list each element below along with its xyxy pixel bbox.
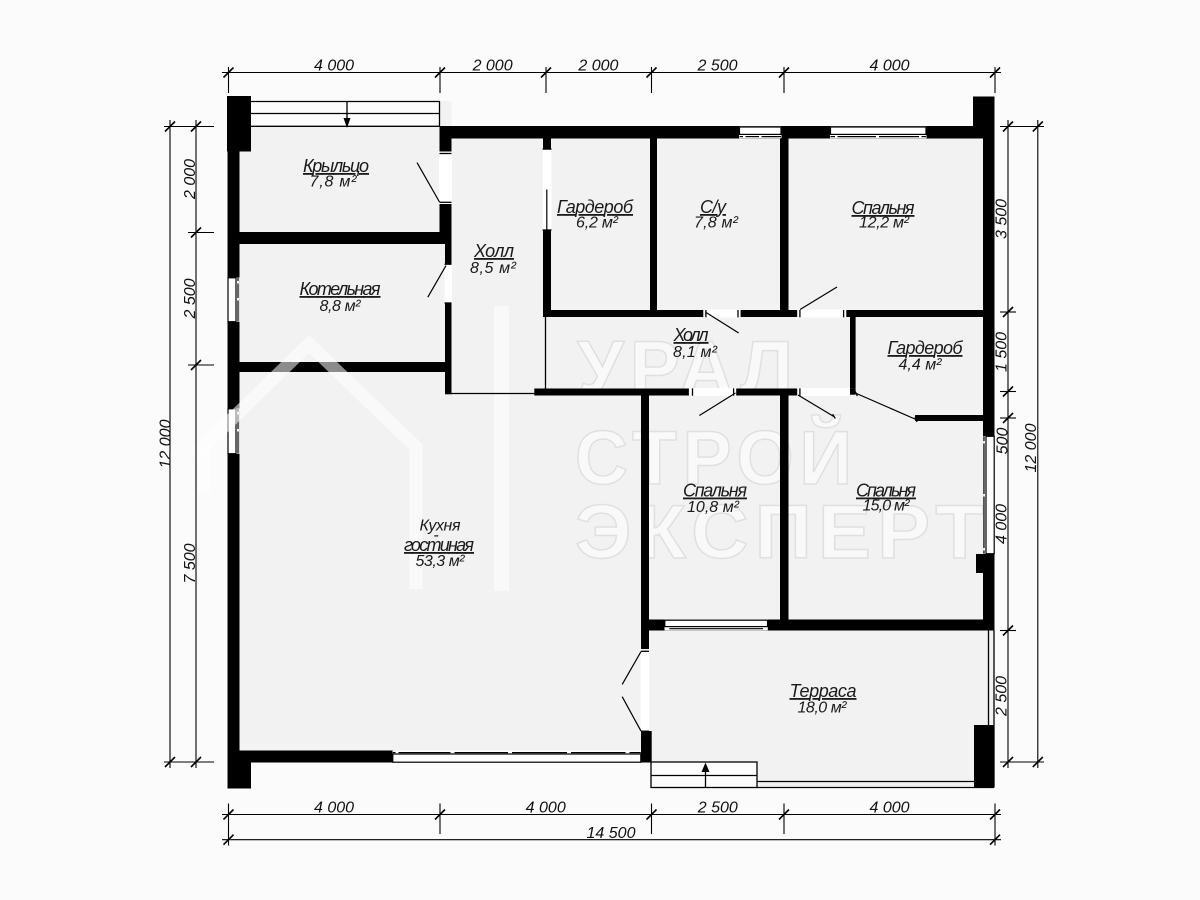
svg-text:Кухня: Кухня <box>420 518 461 535</box>
svg-text:10,8 м²: 10,8 м² <box>687 499 740 516</box>
svg-text:12,2 м²: 12,2 м² <box>859 215 910 232</box>
svg-text:12 000: 12 000 <box>158 419 175 468</box>
svg-text:2 500: 2 500 <box>182 278 199 319</box>
svg-text:8,8 м²: 8,8 м² <box>320 298 362 315</box>
svg-text:15,0 м²: 15,0 м² <box>863 498 911 515</box>
svg-text:4 000: 4 000 <box>526 800 566 817</box>
svg-text:4 000: 4 000 <box>314 800 354 817</box>
svg-text:53,3 м²: 53,3 м² <box>416 553 466 570</box>
svg-text:7,8 м²: 7,8 м² <box>694 215 739 232</box>
svg-text:18,0 м²: 18,0 м² <box>798 700 848 717</box>
svg-text:Холл: Холл <box>673 325 709 345</box>
svg-text:14 500: 14 500 <box>587 825 636 842</box>
svg-text:8,1 м²: 8,1 м² <box>673 344 718 361</box>
svg-text:Гардероб: Гардероб <box>888 338 964 358</box>
svg-text:2 000: 2 000 <box>577 58 618 75</box>
svg-text:Котельная: Котельная <box>300 279 381 299</box>
svg-text:3 500: 3 500 <box>994 199 1011 239</box>
svg-text:2 500: 2 500 <box>696 58 737 75</box>
svg-text:Спальня: Спальня <box>683 481 747 501</box>
svg-text:500: 500 <box>995 428 1012 455</box>
svg-text:6,2 м²: 6,2 м² <box>576 215 619 232</box>
svg-text:Холл: Холл <box>473 241 514 261</box>
svg-text:2 500: 2 500 <box>994 676 1011 717</box>
svg-text:7 500: 7 500 <box>182 543 199 583</box>
svg-text:2 500: 2 500 <box>697 800 738 817</box>
svg-text:2 000: 2 000 <box>182 159 199 200</box>
svg-text:4 000: 4 000 <box>869 800 909 817</box>
svg-text:гостиная: гостиная <box>404 535 474 555</box>
svg-text:7,8 м²: 7,8 м² <box>310 174 358 191</box>
svg-text:2 000: 2 000 <box>472 58 513 75</box>
svg-text:4,4 м²: 4,4 м² <box>899 357 943 374</box>
svg-text:4 000: 4 000 <box>869 58 909 75</box>
svg-text:8,5 м²: 8,5 м² <box>470 260 517 277</box>
svg-text:4 000: 4 000 <box>994 504 1011 544</box>
svg-text:12 000: 12 000 <box>1023 423 1040 472</box>
svg-text:4 000: 4 000 <box>314 58 354 75</box>
svg-text:Терраса: Терраса <box>790 681 857 701</box>
svg-text:1 500: 1 500 <box>994 332 1011 372</box>
